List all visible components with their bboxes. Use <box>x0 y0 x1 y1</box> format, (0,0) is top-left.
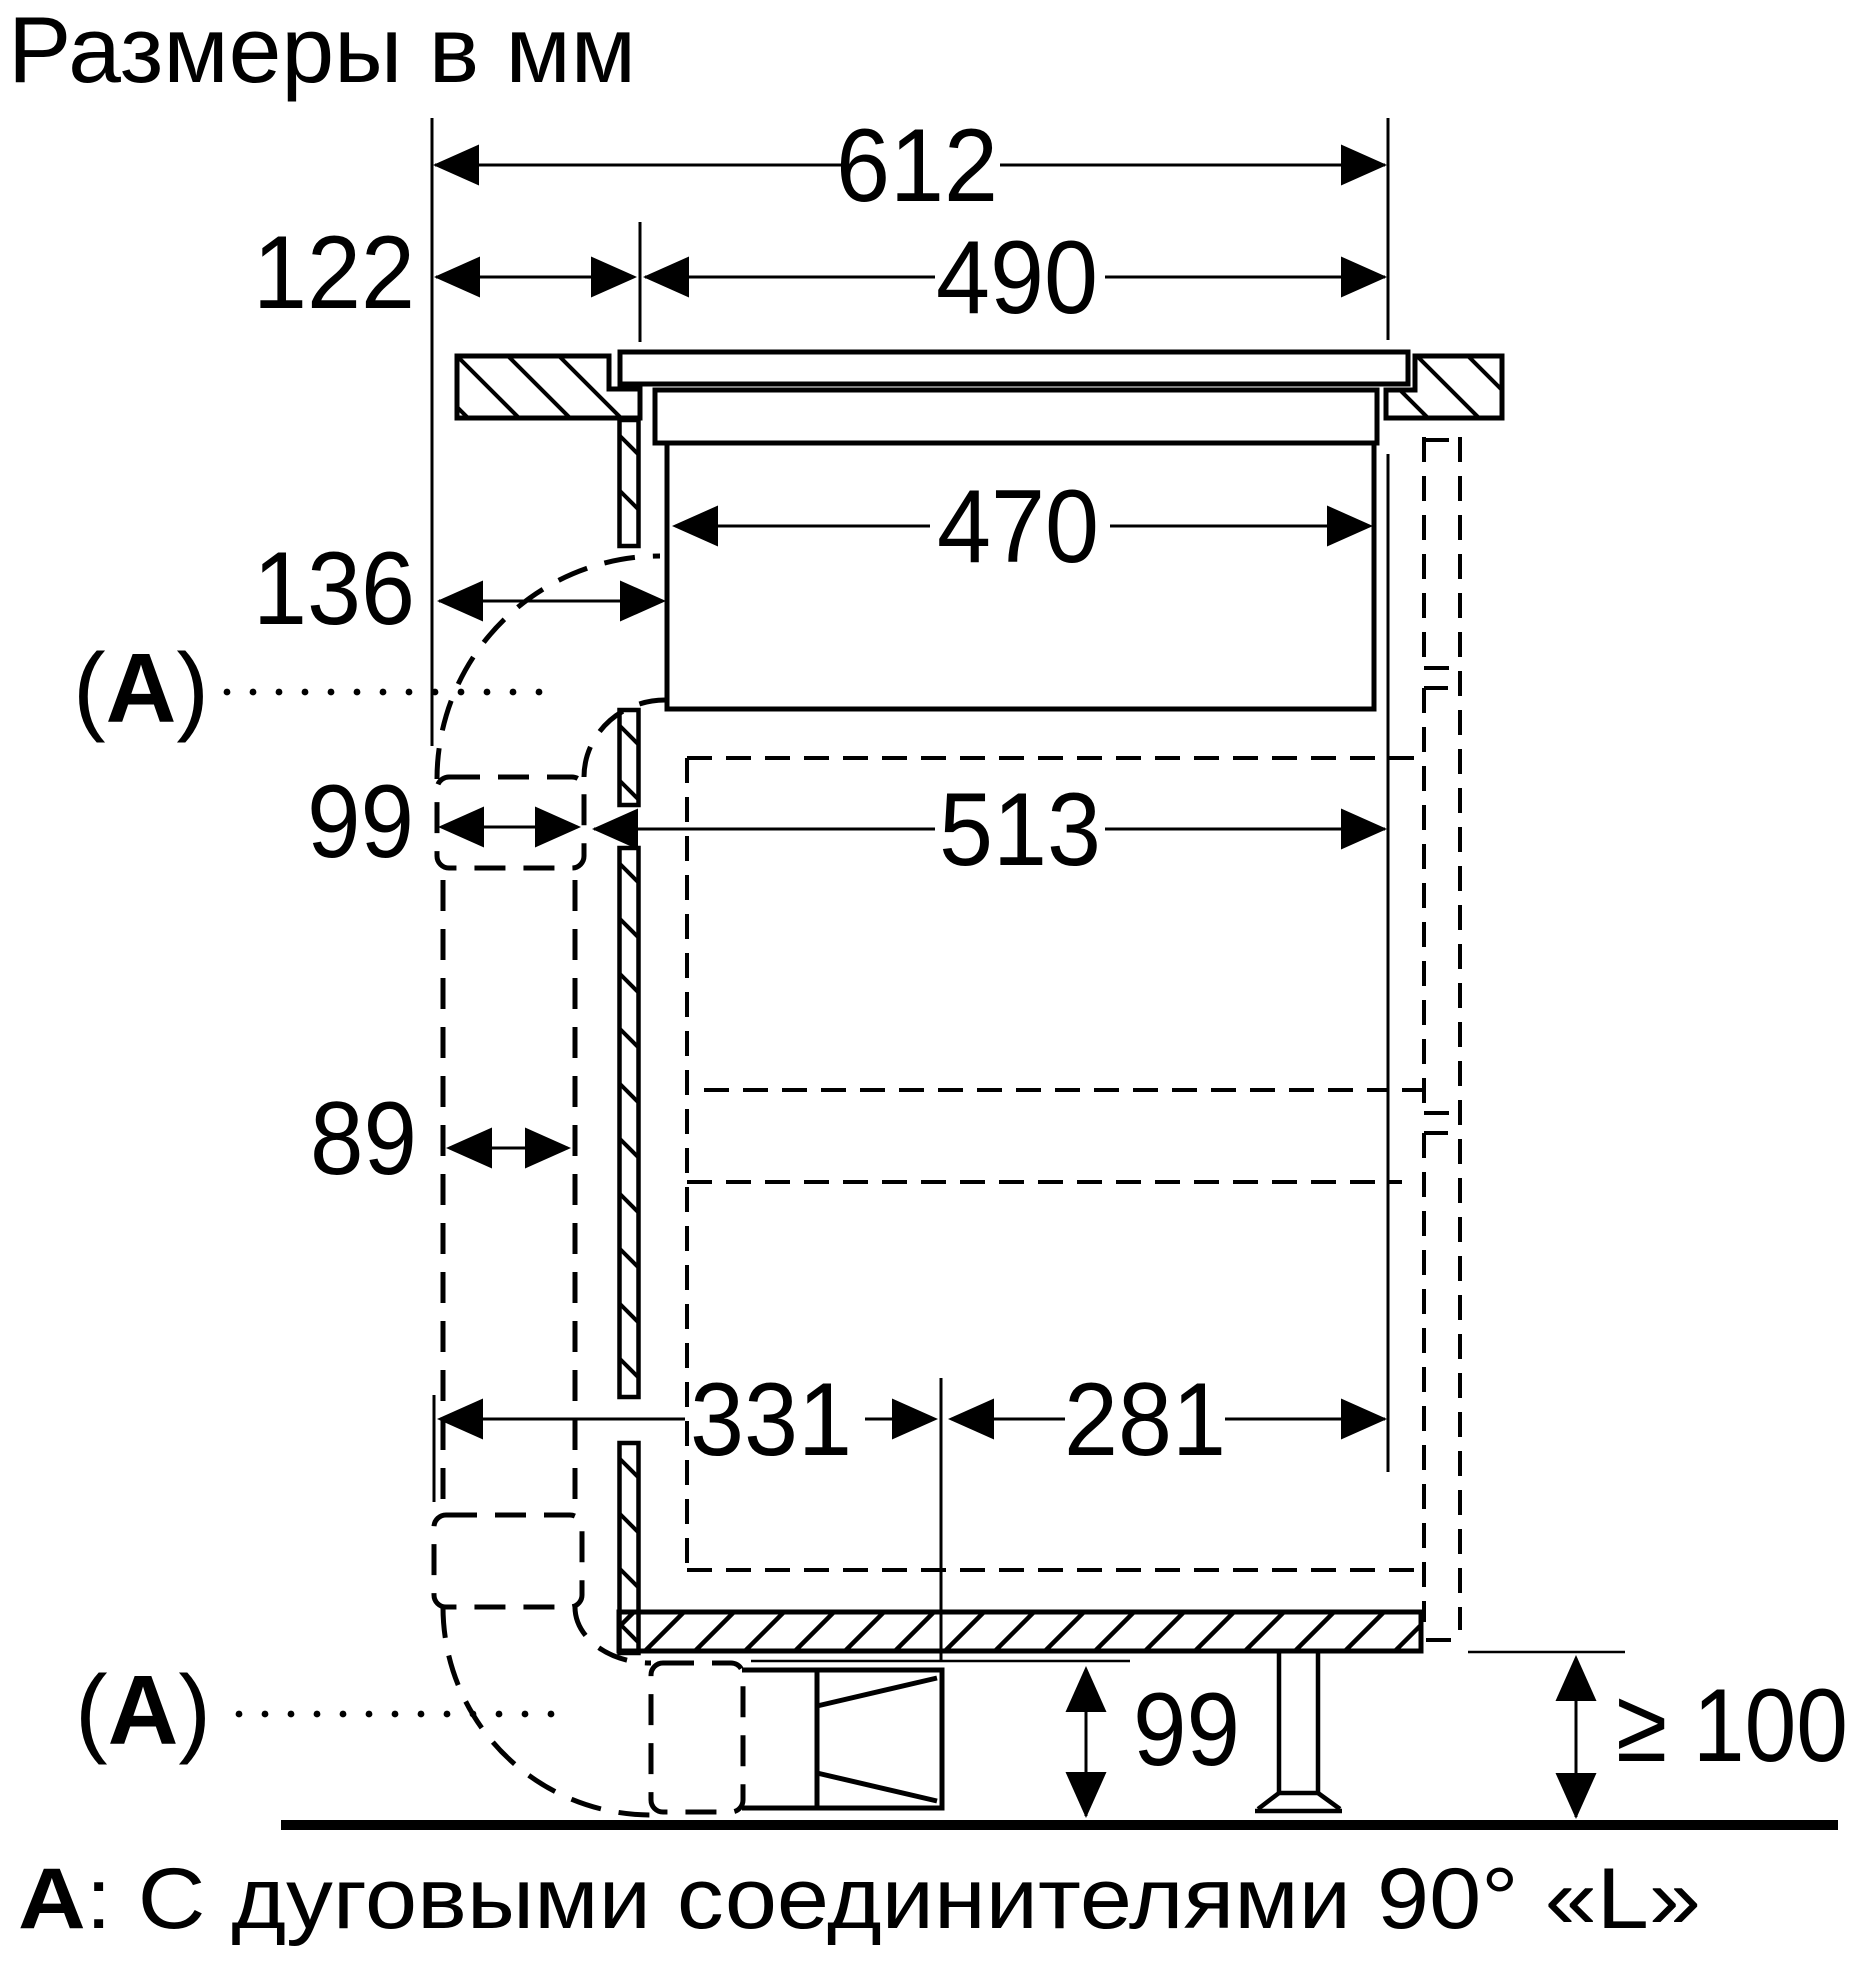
svg-text:470: 470 <box>937 469 1099 585</box>
svg-text:513: 513 <box>939 772 1101 888</box>
svg-text:331: 331 <box>690 1362 852 1478</box>
svg-text:(A): (A) <box>75 1655 211 1765</box>
svg-text:89: 89 <box>310 1081 417 1197</box>
svg-text:612: 612 <box>836 108 998 224</box>
svg-text:99: 99 <box>307 764 414 880</box>
svg-text:122: 122 <box>253 215 415 331</box>
svg-text:(A): (A) <box>73 633 209 743</box>
svg-text:281: 281 <box>1064 1362 1226 1478</box>
svg-text:136: 136 <box>253 531 415 647</box>
svg-text:Размеры в мм: Размеры в мм <box>8 0 636 102</box>
svg-text:490: 490 <box>936 220 1098 336</box>
svg-text:≥ 100: ≥ 100 <box>1616 1668 1848 1784</box>
svg-text:99: 99 <box>1133 1672 1240 1788</box>
svg-text:A: С дуговыми соединителями 90: A: С дуговыми соединителями 90° «L» <box>18 1851 1701 1947</box>
